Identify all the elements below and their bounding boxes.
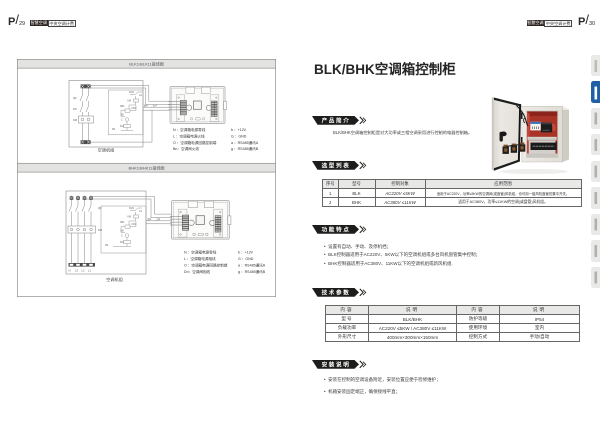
svg-text:C: C bbox=[121, 119, 123, 122]
svg-text:BLK1/BLK11接线图: BLK1/BLK11接线图 bbox=[129, 60, 164, 66]
svg-text:空调机组: 空调机组 bbox=[106, 276, 123, 283]
svg-text:空调机组: 空调机组 bbox=[98, 147, 115, 154]
svg-text:g ：RS485通讯B: g ：RS485通讯B bbox=[238, 269, 266, 274]
svg-text:b ：+12V: b ：+12V bbox=[231, 128, 247, 132]
svg-text:红4: 红4 bbox=[153, 104, 157, 108]
svg-text:b ：+12V: b ：+12V bbox=[238, 251, 254, 255]
svg-text:产品简介: 产品简介 bbox=[322, 117, 351, 125]
svg-text:功能特点: 功能特点 bbox=[322, 226, 351, 234]
svg-text:KM: KM bbox=[73, 118, 77, 122]
svg-text:KM: KM bbox=[120, 241, 124, 244]
svg-text:PE: PE bbox=[105, 244, 109, 247]
svg-text:L ：空调箱电源火线: L ：空调箱电源火线 bbox=[173, 134, 205, 139]
svg-text:FR1: FR1 bbox=[132, 107, 137, 110]
svg-text:QF: QF bbox=[98, 206, 102, 210]
svg-text:O ：空调箱电源回路控制端: O ：空调箱电源回路控制端 bbox=[173, 140, 217, 145]
svg-text:PE: PE bbox=[112, 128, 116, 131]
svg-text:a ：RS485通讯A: a ：RS485通讯A bbox=[231, 140, 259, 145]
svg-text:N ：空调箱电源零线: N ：空调箱电源零线 bbox=[184, 250, 217, 255]
svg-text:SB1: SB1 bbox=[120, 105, 125, 108]
svg-text:L ：空调箱电源相线: L ：空调箱电源相线 bbox=[184, 256, 216, 261]
svg-text:KM1: KM1 bbox=[129, 207, 135, 210]
svg-text:棕4: 棕4 bbox=[144, 104, 148, 108]
svg-text:KM: KM bbox=[128, 100, 132, 103]
svg-text:FR: FR bbox=[73, 107, 77, 111]
svg-text:g ：RS485通讯B: g ：RS485通讯B bbox=[231, 146, 259, 151]
svg-text:C: C bbox=[121, 235, 123, 238]
svg-text:O ：空调箱电源回路控制端: O ：空调箱电源回路控制端 bbox=[184, 263, 228, 268]
svg-text:BHK1/BHK11接线图: BHK1/BHK11接线图 bbox=[129, 164, 165, 170]
svg-text:技术参数: 技术参数 bbox=[322, 289, 351, 297]
svg-text:选型列表: 选型列表 bbox=[322, 162, 351, 170]
svg-text:Dn：空调阀相线: Dn：空调阀相线 bbox=[184, 269, 211, 274]
svg-text:FR1: FR1 bbox=[132, 223, 137, 226]
svg-text:N: N bbox=[69, 269, 71, 273]
svg-text:SB: SB bbox=[121, 230, 125, 233]
svg-text:G ：GND: G ：GND bbox=[238, 257, 254, 261]
svg-text:棕4: 棕4 bbox=[148, 217, 152, 221]
svg-text:G ：GND: G ：GND bbox=[231, 135, 247, 139]
svg-text:KM: KM bbox=[98, 228, 102, 232]
svg-text:N ：空调箱电源零线: N ：空调箱电源零线 bbox=[173, 127, 206, 132]
svg-text:KM: KM bbox=[120, 125, 124, 128]
svg-text:红4: 红4 bbox=[157, 217, 161, 221]
svg-text:a ：RS485通讯A: a ：RS485通讯A bbox=[238, 263, 266, 268]
svg-text:SB: SB bbox=[121, 114, 125, 117]
svg-text:QF: QF bbox=[73, 96, 77, 100]
svg-text:Bn：空调阀火线: Bn：空调阀火线 bbox=[173, 146, 199, 151]
svg-text:KM: KM bbox=[128, 216, 132, 219]
svg-text:SB1: SB1 bbox=[120, 221, 125, 224]
svg-text:安装说明: 安装说明 bbox=[322, 361, 351, 369]
svg-text:KM1: KM1 bbox=[129, 91, 135, 94]
